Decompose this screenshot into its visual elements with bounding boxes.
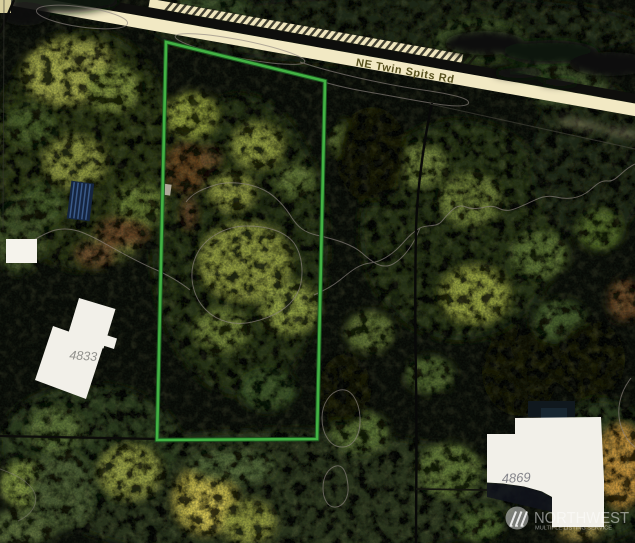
svg-text:NORTHWEST: NORTHWEST — [534, 510, 629, 527]
svg-text:MULTIPLE LISTING SERVICE: MULTIPLE LISTING SERVICE — [535, 526, 612, 532]
svg-text:4833: 4833 — [69, 348, 98, 364]
svg-text:4869: 4869 — [501, 469, 531, 485]
